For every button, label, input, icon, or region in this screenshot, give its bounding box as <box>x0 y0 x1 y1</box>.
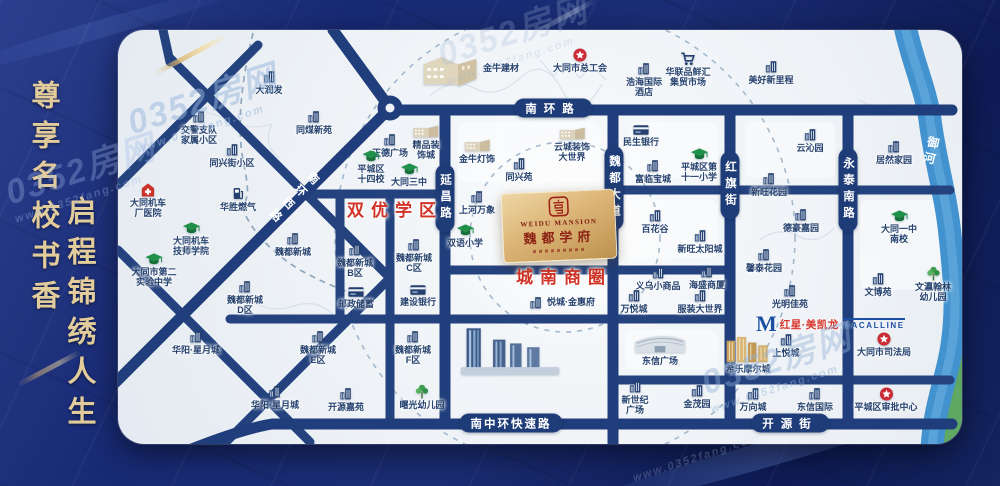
map-poi: 魏都新城E区 <box>300 328 336 366</box>
slogan-line-2: 启程锦绣人生 <box>58 196 100 436</box>
building-icon <box>261 68 277 84</box>
map-poi: 悦城·金惠府 <box>528 294 595 311</box>
map-poi: 新旺花园 <box>751 170 787 197</box>
beige-icon <box>558 124 585 141</box>
map-poi: 上河万象 <box>459 188 495 215</box>
map-poi: 东信广场 <box>633 330 687 366</box>
map-poi: 同兴苑 <box>505 155 532 182</box>
road-label: 红旗街 <box>721 151 740 219</box>
poi-label: 大同市第二实验中学 <box>131 267 176 288</box>
building-icon <box>528 294 544 310</box>
map-poi: 金茂园 <box>683 382 710 409</box>
poi-label: 平城区十四校 <box>357 164 384 185</box>
map-poi: 平城区第十一小学 <box>681 148 717 183</box>
poi-label: 大润发 <box>255 85 282 95</box>
hospital-icon <box>141 183 155 197</box>
map-poi: 文博苑 <box>864 270 891 297</box>
poi-label: 金牛灯饰 <box>459 154 495 164</box>
building-icon <box>626 287 642 303</box>
poi-label: 大同机车厂医院 <box>130 198 166 219</box>
star-icon <box>879 387 893 401</box>
location-map-poster: 尊享名校书香 启程锦绣人生 <box>0 0 1000 486</box>
map-poi: 华阳·星月城 <box>251 383 299 410</box>
map-poi: 魏都新城B区 <box>337 241 373 279</box>
building-icon <box>647 207 663 223</box>
road-label: 开源街 <box>751 414 829 433</box>
road-label: 永泰南路 <box>839 148 858 232</box>
poi-label: 东信国际 <box>797 402 833 412</box>
road-label: 南中环快速路 <box>460 414 563 433</box>
map-poi: 大润发 <box>255 68 282 95</box>
building-icon <box>224 141 240 157</box>
poi-label: 开源嘉苑 <box>328 402 364 412</box>
poi-label: 服装大世界 <box>677 304 722 314</box>
building-icon <box>699 263 715 279</box>
map-poi: 魏都新城F区 <box>395 328 431 366</box>
road-label: 南环路 <box>514 99 592 118</box>
building-icon <box>405 328 421 344</box>
poi-label: 平城区审批中心 <box>854 402 917 412</box>
map-poi: 开源嘉苑 <box>328 385 364 412</box>
poi-label: 文博苑 <box>864 287 891 297</box>
map-poi: 华胜燃气 <box>220 186 256 212</box>
map-poi: 大同市第二实验中学 <box>131 253 176 288</box>
poi-label: 金茂园 <box>683 399 710 409</box>
map-poi: 双语小学 <box>447 224 483 248</box>
map-poi: 大同市司法局 <box>857 332 911 357</box>
map-poi: 华联品鲜汇集贸市场 <box>665 52 710 88</box>
map-poi: 金牛建材 <box>420 46 519 91</box>
poi-label: 万向城 <box>739 402 766 412</box>
map-poi: 富临宝城 <box>635 157 671 184</box>
map-poi: 华阳·星月城 <box>172 328 220 355</box>
map-poi: 平城区审批中心 <box>854 387 917 412</box>
poi-label: 上河万象 <box>459 205 495 215</box>
poi-label: 文瀛翰林幼儿园 <box>915 282 951 303</box>
tree-icon <box>926 266 939 281</box>
map-poi: 百花谷 <box>641 207 668 234</box>
highlight-tag: 城南商圈 <box>516 263 612 288</box>
map-poi: 金牛灯饰 <box>459 136 495 164</box>
project-name-cn: 魏都学府 <box>523 225 596 247</box>
poi-label: 曙光幼儿园 <box>399 400 444 410</box>
poi-label: 华阳·星月城 <box>172 345 220 355</box>
star-icon <box>877 332 891 346</box>
map-poi: 万向城 <box>739 385 766 412</box>
poi-label: 光明佳苑 <box>772 299 808 309</box>
highlight-tag: 双优学区 <box>347 196 443 221</box>
building-icon <box>267 383 283 399</box>
building-icon <box>782 282 798 298</box>
poi-label: 魏都新城F区 <box>395 345 431 366</box>
towers-icon <box>459 326 565 376</box>
poi-label: 百花谷 <box>641 224 668 234</box>
building-icon <box>870 270 886 286</box>
poi-label: 平城区第十一小学 <box>681 162 717 183</box>
building-icon <box>650 264 666 280</box>
map-poi: 魏都新城D区 <box>227 278 263 316</box>
poi-label: 同煤新苑 <box>296 125 332 135</box>
poi-label: 新旺太阳城 <box>677 244 722 254</box>
star-icon <box>573 48 587 62</box>
poi-label: 新旺花园 <box>751 187 787 197</box>
gold-icon <box>725 336 772 363</box>
map-poi: 希乐摩尔城 <box>725 336 772 374</box>
poi-label: 悦城·金惠府 <box>547 297 595 307</box>
card-icon <box>633 124 649 136</box>
poi-label: 居然家园 <box>876 155 912 165</box>
cart-icon <box>680 52 695 66</box>
poi-label: 上悦城 <box>772 348 799 358</box>
building-icon <box>745 385 761 401</box>
map-poi: 新世纪广场 <box>621 378 648 416</box>
school-icon <box>890 210 907 223</box>
poi-label: 大同市总工会 <box>553 63 607 73</box>
school-icon <box>362 150 379 163</box>
building-icon <box>692 227 708 243</box>
map-poi: 居然家园 <box>876 138 912 165</box>
building-icon <box>306 108 322 124</box>
poi-label: 民生银行 <box>623 137 659 147</box>
gas-icon <box>232 186 243 201</box>
poi-label: 双语小学 <box>447 238 483 248</box>
building-icon <box>191 108 207 124</box>
map-poi: 文瀛翰林幼儿园 <box>915 266 951 303</box>
beige-wide-icon <box>420 46 480 90</box>
map-poi: 美好新里程 <box>748 58 793 85</box>
poi-label: 大同机车技师学院 <box>173 236 209 257</box>
tree-icon <box>415 384 428 399</box>
building-icon <box>338 385 354 401</box>
macalline-m-icon: M <box>756 315 777 334</box>
poi-label: 魏都新城B区 <box>337 258 373 279</box>
poi-label: 大同三中 <box>391 177 427 187</box>
building-icon <box>188 328 204 344</box>
map-poi: 德豪嘉园 <box>783 206 819 233</box>
poi-label: 美好新里程 <box>748 75 793 85</box>
macalline-brand-en: MACALLINE <box>843 318 905 330</box>
map-poi: 新旺太阳城 <box>677 227 722 254</box>
poi-label: 邮政储蓄 <box>338 299 374 309</box>
building-icon <box>285 230 301 246</box>
poi-label: 建设银行 <box>400 297 436 307</box>
building-icon <box>689 382 705 398</box>
map-poi: 云沁园 <box>796 126 823 153</box>
project-card: WEIDU MANSION 魏都学府 <box>501 189 618 264</box>
project-seal-logo <box>547 196 569 218</box>
card-icon <box>410 284 426 296</box>
poi-label: 浩海国际酒店 <box>626 77 662 98</box>
map-poi: 万悦城 <box>620 287 647 314</box>
poi-label: 精品装饰城 <box>412 140 439 161</box>
map-poi: 浩海国际酒店 <box>626 60 662 98</box>
poi-label: 魏都新城C区 <box>396 253 432 274</box>
project-tagline-rule <box>533 248 587 253</box>
map-poi: 光明佳苑 <box>772 282 808 309</box>
map-poi: 大同机车技师学院 <box>173 222 209 257</box>
beige-icon <box>463 136 490 153</box>
building-icon <box>469 188 485 204</box>
building-icon <box>237 278 253 294</box>
building-icon <box>793 206 809 222</box>
building-icon <box>645 157 661 173</box>
poi-label: 希乐摩尔城 <box>725 364 770 374</box>
building-icon <box>310 328 326 344</box>
poi-label: 同兴街小区 <box>209 158 254 168</box>
map-poi: 民生银行 <box>623 124 659 147</box>
map-poi: 魏都新城C区 <box>396 236 432 274</box>
school-icon <box>456 224 473 237</box>
building-icon <box>627 378 643 394</box>
map-poi <box>459 326 565 377</box>
map-poi: 大同市总工会 <box>553 48 607 73</box>
card-icon <box>348 286 364 298</box>
building-icon <box>406 236 422 252</box>
macalline-logo: M 红星·美凯龙 MACALLINE <box>756 315 905 334</box>
building-icon <box>761 170 777 186</box>
building-icon <box>511 155 527 171</box>
building-icon <box>382 131 398 147</box>
map-poi: 同煤新苑 <box>296 108 332 135</box>
poi-label: 大同市司法局 <box>857 347 911 357</box>
school-icon <box>182 222 199 235</box>
building-icon <box>763 58 779 74</box>
poi-label: 魏都新城D区 <box>227 295 263 316</box>
building-icon <box>807 385 823 401</box>
poi-label: 华胜燃气 <box>220 202 256 212</box>
map-poi: 大同机车厂医院 <box>130 183 166 219</box>
building-icon <box>756 246 772 262</box>
poi-label: 同兴苑 <box>505 172 532 182</box>
school-icon <box>400 163 417 176</box>
poi-label: 德豪嘉园 <box>783 223 819 233</box>
building-icon <box>636 60 652 76</box>
poi-label: 东信广场 <box>642 356 678 366</box>
building-icon <box>347 241 363 257</box>
school-icon <box>690 148 707 161</box>
poi-label: 新世纪广场 <box>621 395 648 416</box>
map-poi: 建设银行 <box>400 284 436 307</box>
poi-label: 云城装饰大世界 <box>554 142 590 163</box>
map-poi: 同兴街小区 <box>209 141 254 168</box>
map-poi: 东信国际 <box>797 385 833 412</box>
map-poi: 平城区十四校 <box>357 150 384 185</box>
map-poi: 云城装饰大世界 <box>554 124 590 163</box>
mall-icon <box>633 330 687 355</box>
map-poi: 大同三中 <box>391 163 427 187</box>
building-icon <box>802 126 818 142</box>
map-poi: 馨泰花园 <box>746 246 782 273</box>
beige-icon <box>412 122 439 139</box>
poi-label: 万悦城 <box>620 304 647 314</box>
map-poi: 魏都新城 <box>275 230 311 257</box>
poi-label: 魏都新城 <box>275 247 311 257</box>
map-poi: 邮政储蓄 <box>338 286 374 309</box>
poi-label: 华阳·星月城 <box>251 400 299 410</box>
macalline-brand-cn: 红星·美凯龙 <box>780 319 839 331</box>
poi-label: 云沁园 <box>796 143 823 153</box>
map-poi: 服装大世界 <box>677 287 722 314</box>
building-icon <box>886 138 902 154</box>
map-poi: 精品装饰城 <box>412 122 439 161</box>
map-poi: 曙光幼儿园 <box>399 384 444 410</box>
poi-label: 大同一中南校 <box>881 224 917 245</box>
poi-label: 金牛建材 <box>483 63 519 73</box>
building-icon <box>692 287 708 303</box>
poi-label: 魏都新城E区 <box>300 345 336 366</box>
map-poi: 大同一中南校 <box>881 210 917 245</box>
school-icon <box>145 253 162 266</box>
poi-label: 富临宝城 <box>635 174 671 184</box>
poi-label: 馨泰花园 <box>746 263 782 273</box>
poi-label: 华联品鲜汇集贸市场 <box>665 67 710 88</box>
